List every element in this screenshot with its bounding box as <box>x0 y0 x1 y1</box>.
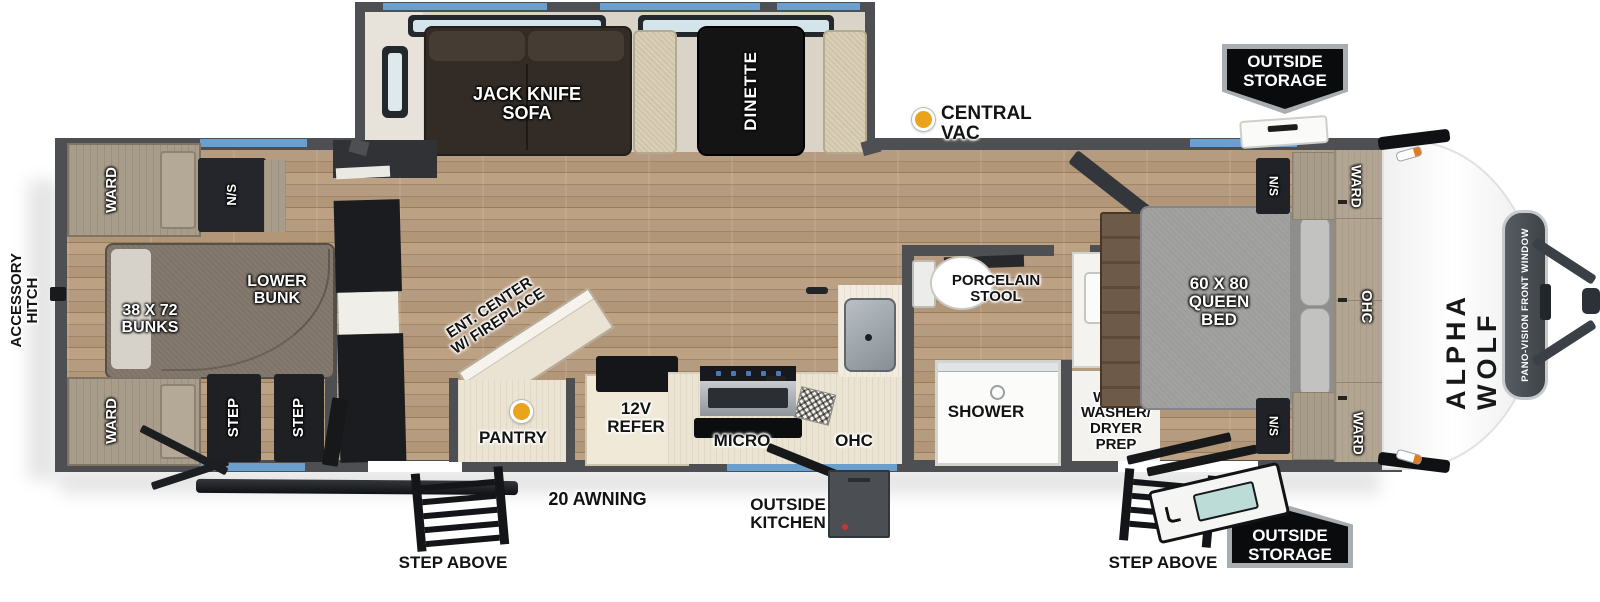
stair-tread <box>422 493 496 505</box>
dinette-label: DINETTE <box>742 51 760 131</box>
dinette-table: DINETTE <box>697 26 805 156</box>
slideout-end-window-glass <box>388 53 402 111</box>
lower-bunk-label: LOWER BUNK <box>231 271 323 311</box>
outside-kitchen-handle-icon <box>848 478 870 482</box>
bath-wall-top <box>902 245 1054 256</box>
ohc-handle-icon <box>1338 298 1347 302</box>
bedroom-cab-top <box>1292 152 1336 220</box>
sofa-back-cushion-right <box>528 31 624 61</box>
shower-drain-icon <box>990 385 1005 400</box>
slideout-window-strip-1 <box>383 3 547 10</box>
central-vac-label: CENTRAL VAC <box>941 104 1071 128</box>
stair-tread <box>426 535 500 547</box>
queen-bed-label: 60 X 80 QUEEN BED <box>1158 270 1280 334</box>
bedroom-ns-top: N/S <box>1256 158 1290 214</box>
stove-knob-icon <box>761 371 766 376</box>
stove-knob-icon <box>731 371 736 376</box>
stove-oven-window <box>708 388 788 408</box>
bunk-shelf <box>264 160 286 232</box>
central-vac-dot-icon <box>912 108 935 131</box>
bed-pillow-top <box>1300 216 1330 306</box>
step-above-left-label: STEP ABOVE <box>388 552 518 574</box>
bunk-ward-top-label-wrap: WARD <box>96 153 128 227</box>
bunk-ward-top <box>67 143 201 237</box>
bedroom-ward-bottom-label-wrap: WARD <box>1344 404 1372 462</box>
bunk-step-2: STEP <box>274 374 324 462</box>
slideout-window-strip-2 <box>600 3 760 10</box>
bedroom-ns-bottom: N/S <box>1256 398 1290 454</box>
bunk-step-1-label: STEP <box>226 398 242 437</box>
bunk-nightstand-label: N/S <box>225 184 239 206</box>
outside-storage-top-label: OUTSIDE STORAGE <box>1232 51 1338 93</box>
bunk-ladder-panel-bottom <box>337 333 406 463</box>
bedroom-ohc-label-wrap: OHC <box>1352 278 1380 336</box>
brand-label-wrap: ALPHA WOLF <box>1450 190 1494 410</box>
shower-label: SHOWER <box>930 400 1042 424</box>
dinette-bench-right <box>823 30 867 154</box>
bedroom-ohc-label: OHC <box>1358 290 1374 323</box>
stair-tread <box>423 507 497 519</box>
refrigerator-top <box>596 356 678 392</box>
stove-knob-icon <box>746 371 751 376</box>
bunk-step-1: STEP <box>207 374 261 462</box>
bedroom-ns-bottom-label: N/S <box>1267 416 1280 436</box>
step-above-right-label: STEP ABOVE <box>1098 552 1228 574</box>
bunk-step-2-label: STEP <box>291 398 307 437</box>
sofa-back-cushion-left <box>429 31 525 61</box>
pano-vision-label: PANO-VISION FRONT WINDOW <box>1520 228 1531 382</box>
stove-body <box>700 381 796 416</box>
accessory-hitch-label: ACCESSORY HITCH <box>9 253 41 347</box>
pantry-wall-left <box>449 378 458 462</box>
dinette-bench-left <box>633 30 677 154</box>
bedroom-ward-top-label: WARD <box>1349 165 1364 208</box>
bed-pillow-bottom <box>1300 308 1330 398</box>
brand-label: ALPHA WOLF <box>1441 190 1503 410</box>
kitchen-ohc-label: OHC <box>824 430 884 452</box>
bedroom-ward-top-label-wrap: WARD <box>1342 157 1370 215</box>
pantry-label: PANTRY <box>468 426 558 450</box>
bunk-ladder-column <box>334 199 407 463</box>
outside-storage-bottom-label: OUTSIDE STORAGE <box>1237 526 1343 566</box>
bunk-ward-bottom-label-wrap: WARD <box>96 386 128 456</box>
kitchen-sink-drain-icon <box>865 334 872 341</box>
stove <box>700 366 796 416</box>
bunk-ward-top-door <box>160 151 196 229</box>
stair-tread <box>424 521 498 533</box>
pantry-vac-dot-icon <box>510 400 533 423</box>
slideout-window-strip-3 <box>777 3 860 10</box>
storage-hatch-handle-icon <box>1268 124 1298 132</box>
entry-door-handle-icon <box>1165 504 1181 523</box>
sofa-label: JACK KNIFE SOFA <box>452 82 602 126</box>
awning-label: 20 AWNING <box>535 488 660 510</box>
bunk-ward-top-label: WARD <box>104 167 120 213</box>
entry-door-window <box>1192 481 1259 522</box>
refer-label: 12V REFER <box>598 396 674 440</box>
shower-glass <box>938 363 1058 372</box>
pantry-wall-right <box>566 378 575 462</box>
floorplan: JACK KNIFE SOFA DINETTE WARD N/S 38 X 72… <box>0 0 1600 602</box>
kitchen-sink <box>844 298 896 372</box>
window-strip-top-bunkroom <box>200 139 307 147</box>
accessory-hitch-nub-icon <box>50 287 66 301</box>
porcelain-stool-label: PORCELAIN STOOL <box>940 270 1052 308</box>
bunk-nightstand: N/S <box>198 158 266 232</box>
outside-kitchen-label: OUTSIDE KITCHEN <box>728 492 848 536</box>
bedroom-cab-bottom <box>1292 392 1336 460</box>
bunk-ladder-gap <box>338 291 399 335</box>
slideout-wall-left <box>355 2 365 150</box>
ohc-handle-icon <box>1338 396 1347 400</box>
slideout-end-window <box>382 46 408 118</box>
wall-rear <box>55 138 67 472</box>
stair-tread <box>421 479 495 491</box>
outside-storage-badge-top: OUTSIDE STORAGE <box>1222 44 1348 114</box>
entry-stairs-left <box>411 466 509 552</box>
hitch-coupler <box>1582 288 1600 314</box>
bunk-ward-bottom-label: WARD <box>104 398 120 444</box>
accessory-hitch-label-wrap: ACCESSORY HITCH <box>2 244 48 356</box>
bunk-ladder-panel-top <box>334 199 402 293</box>
bedroom-ns-top-label: N/S <box>1267 176 1280 196</box>
bedroom-ward-bottom-label: WARD <box>1351 412 1366 455</box>
hitch-jack <box>1540 284 1551 320</box>
stove-knob-icon <box>716 371 721 376</box>
kitchen-faucet-icon <box>806 287 828 294</box>
bunks-size-label: 38 X 72 BUNKS <box>100 298 200 342</box>
counter-handle <box>766 376 786 381</box>
